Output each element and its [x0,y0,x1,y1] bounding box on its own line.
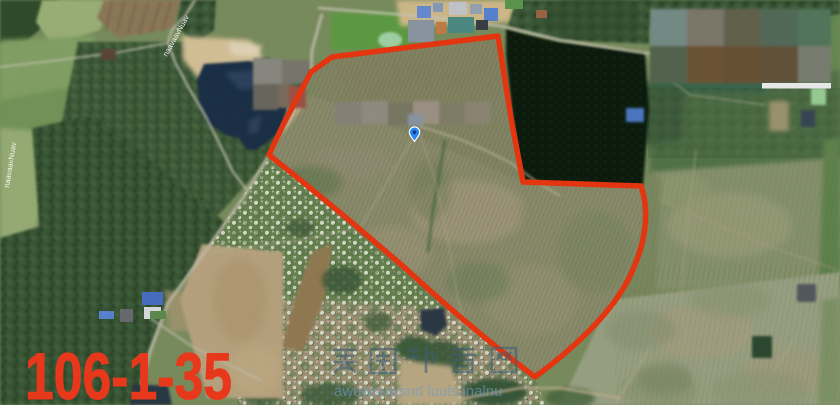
svg-text:106-1-35: 106-1-35 [25,339,232,405]
svg-text:awuwsuwsnd luuls:inalnu: awuwsuwsnd luuls:inalnu [334,383,502,400]
